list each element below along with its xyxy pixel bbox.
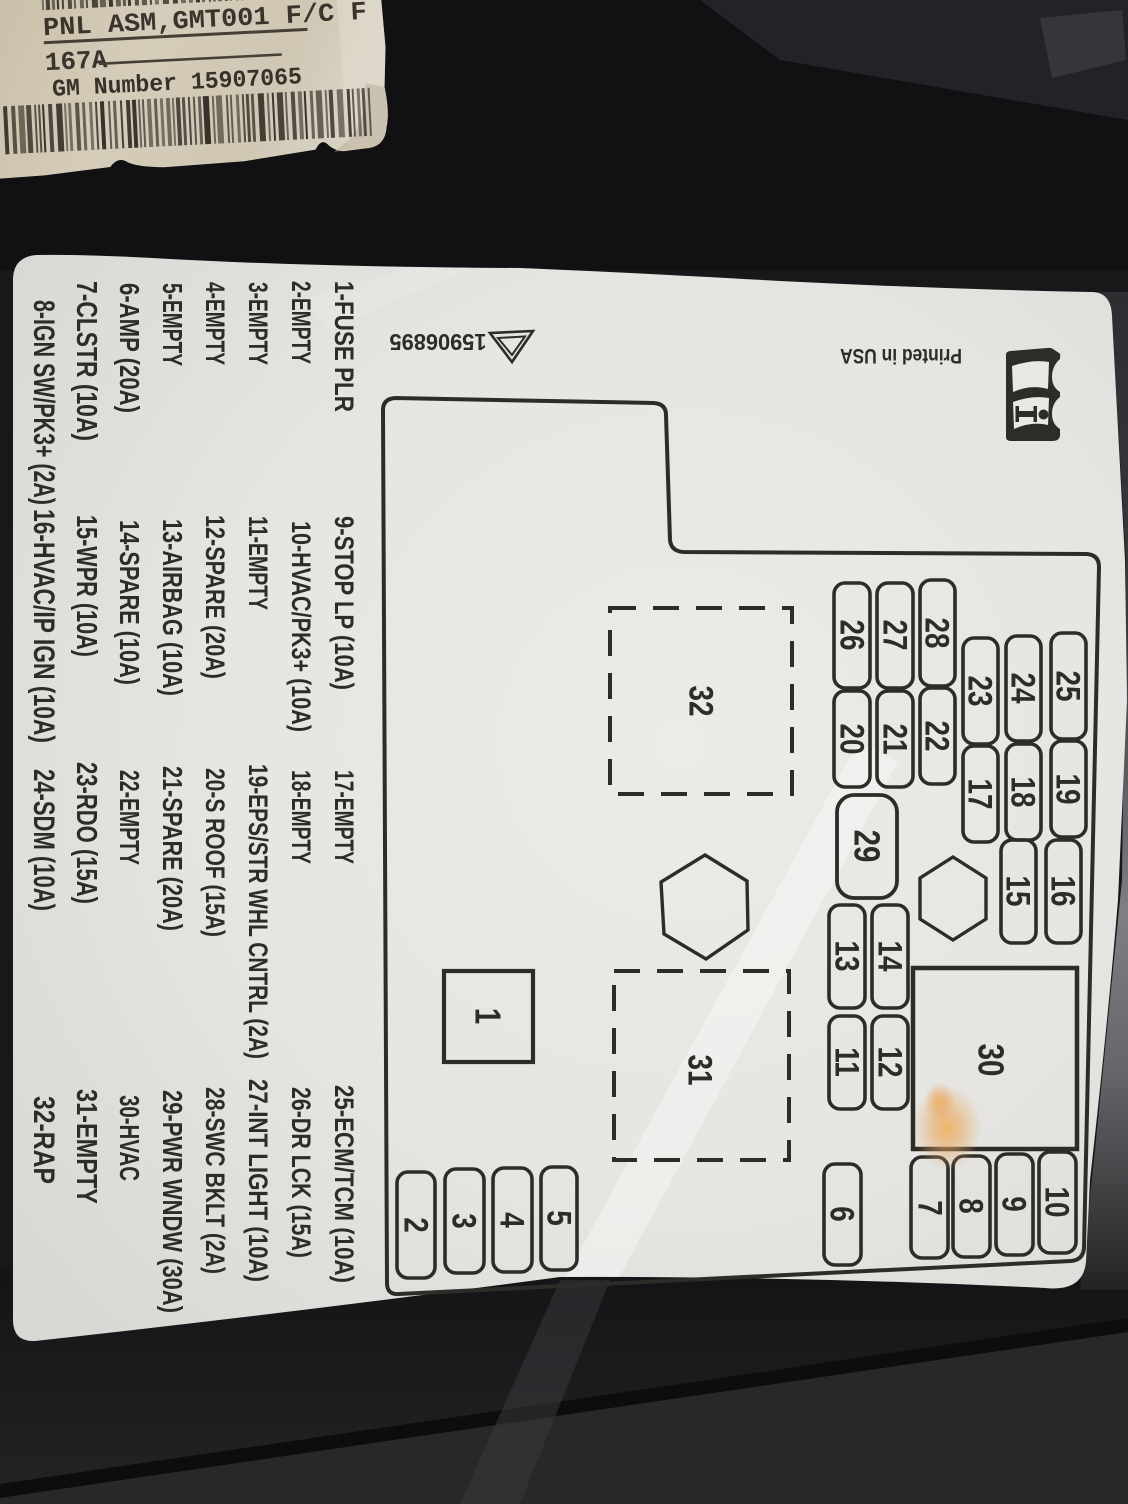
svg-text:20: 20 [833,723,871,754]
svg-text:20-S ROOF (15A): 20-S ROOF (15A) [200,768,230,937]
svg-text:6-AMP (20A): 6-AMP (20A) [114,283,145,413]
svg-text:22: 22 [918,720,956,751]
svg-text:9-STOP LP (10A): 9-STOP LP (10A) [329,516,359,690]
svg-text:24: 24 [1004,672,1042,704]
svg-text:8-IGN SW/PK3+ (2A): 8-IGN SW/PK3+ (2A) [27,300,60,505]
svg-text:23: 23 [961,675,999,706]
svg-text:32: 32 [682,685,720,716]
svg-text:17-EMPTY: 17-EMPTY [329,770,359,864]
svg-text:11: 11 [828,1047,866,1076]
svg-text:30: 30 [971,1044,1011,1077]
svg-text:32-RAP: 32-RAP [27,1096,60,1184]
svg-text:27-INT LIGHT (10A): 27-INT LIGHT (10A) [243,1079,273,1282]
svg-text:9: 9 [995,1196,1033,1212]
svg-text:11-EMPTY: 11-EMPTY [243,516,273,610]
svg-text:21: 21 [876,723,914,754]
svg-text:18-EMPTY: 18-EMPTY [286,770,316,864]
svg-text:16-HVAC/IP IGN (10A): 16-HVAC/IP IGN (10A) [27,509,60,743]
svg-text:29: 29 [847,830,887,863]
svg-text:3: 3 [445,1213,483,1229]
svg-text:4-EMPTY: 4-EMPTY [200,282,230,365]
svg-text:2: 2 [397,1217,435,1233]
svg-text:5-EMPTY: 5-EMPTY [157,283,188,366]
svg-text:26-DR LCK (15A): 26-DR LCK (15A) [286,1087,316,1258]
svg-text:10: 10 [1038,1186,1076,1217]
svg-text:14-SPARE (10A): 14-SPARE (10A) [114,520,145,685]
svg-text:18: 18 [1004,776,1042,807]
svg-text:25-ECM/TCM (10A): 25-ECM/TCM (10A) [329,1085,359,1283]
svg-text:2-EMPTY: 2-EMPTY [286,281,316,364]
svg-text:25: 25 [1049,670,1087,701]
svg-text:8: 8 [952,1198,990,1214]
svg-text:21-SPARE (20A): 21-SPARE (20A) [157,766,188,931]
svg-text:6: 6 [823,1206,861,1222]
svg-text:1: 1 [468,1008,508,1024]
svg-text:31: 31 [681,1054,719,1085]
svg-text:30-HVAC: 30-HVAC [114,1095,145,1181]
svg-text:19: 19 [1049,773,1087,804]
svg-text:5: 5 [540,1210,578,1226]
svg-text:12: 12 [871,1046,909,1077]
svg-text:28-SWC BKLT (2A): 28-SWC BKLT (2A) [200,1087,230,1274]
svg-text:15: 15 [999,875,1037,906]
svg-text:7: 7 [911,1200,949,1216]
svg-text:15906895: 15906895 [389,329,486,355]
svg-text:3-EMPTY: 3-EMPTY [243,282,273,365]
svg-text:15-WPR (10A): 15-WPR (10A) [70,515,102,657]
svg-text:26: 26 [833,619,871,650]
svg-text:13: 13 [828,940,866,971]
svg-text:28: 28 [918,617,956,648]
svg-text:1-FUSE PLR: 1-FUSE PLR [329,281,359,412]
svg-text:Printed in USA: Printed in USA [840,344,962,367]
svg-text:4: 4 [493,1212,531,1228]
svg-text:7-CLSTR (10A): 7-CLSTR (10A) [70,281,102,441]
svg-text:24-SDM (10A): 24-SDM (10A) [27,769,60,911]
svg-text:13-AIRBAG (10A): 13-AIRBAG (10A) [157,519,188,696]
svg-text:23-RDO (15A): 23-RDO (15A) [70,762,102,904]
svg-text:22-EMPTY: 22-EMPTY [114,770,145,865]
svg-text:10-HVAC/PK3+ (10A): 10-HVAC/PK3+ (10A) [286,521,316,732]
svg-text:17: 17 [961,778,999,809]
svg-text:167A: 167A [44,45,108,78]
svg-text:29-PWR WNDW (30A): 29-PWR WNDW (30A) [157,1090,188,1313]
svg-text:19-EPS/STR WHL CNTRL (2A): 19-EPS/STR WHL CNTRL (2A) [243,764,273,1059]
svg-text:14: 14 [871,940,909,972]
svg-text:12-SPARE (20A): 12-SPARE (20A) [200,515,230,679]
svg-text:27: 27 [876,619,914,650]
svg-text:16: 16 [1044,875,1082,906]
svg-text:31-EMPTY: 31-EMPTY [70,1089,102,1204]
